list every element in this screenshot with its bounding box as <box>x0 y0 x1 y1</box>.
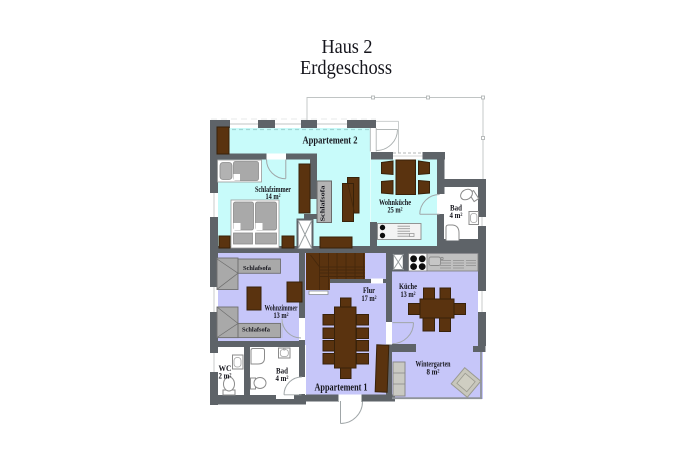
svg-text:4 m²: 4 m² <box>276 374 290 383</box>
svg-text:Appartement 1: Appartement 1 <box>315 383 368 394</box>
svg-text:25 m²: 25 m² <box>388 206 403 215</box>
svg-text:13 m²: 13 m² <box>401 290 416 299</box>
svg-text:Erdgeschoss: Erdgeschoss <box>300 57 392 79</box>
svg-text:4 m²: 4 m² <box>450 211 464 220</box>
svg-text:2 m²: 2 m² <box>219 372 233 381</box>
svg-text:Schlafsofa: Schlafsofa <box>242 326 271 333</box>
svg-text:17 m²: 17 m² <box>362 294 377 303</box>
svg-text:8 m²: 8 m² <box>427 368 441 377</box>
svg-text:Schlafsofa: Schlafsofa <box>320 185 327 222</box>
svg-text:Schlafsofa: Schlafsofa <box>243 265 272 272</box>
svg-text:14 m²: 14 m² <box>266 192 281 201</box>
svg-text:13 m²: 13 m² <box>274 311 289 320</box>
svg-text:Appartement 2: Appartement 2 <box>303 136 358 147</box>
svg-text:Haus 2: Haus 2 <box>322 36 373 58</box>
